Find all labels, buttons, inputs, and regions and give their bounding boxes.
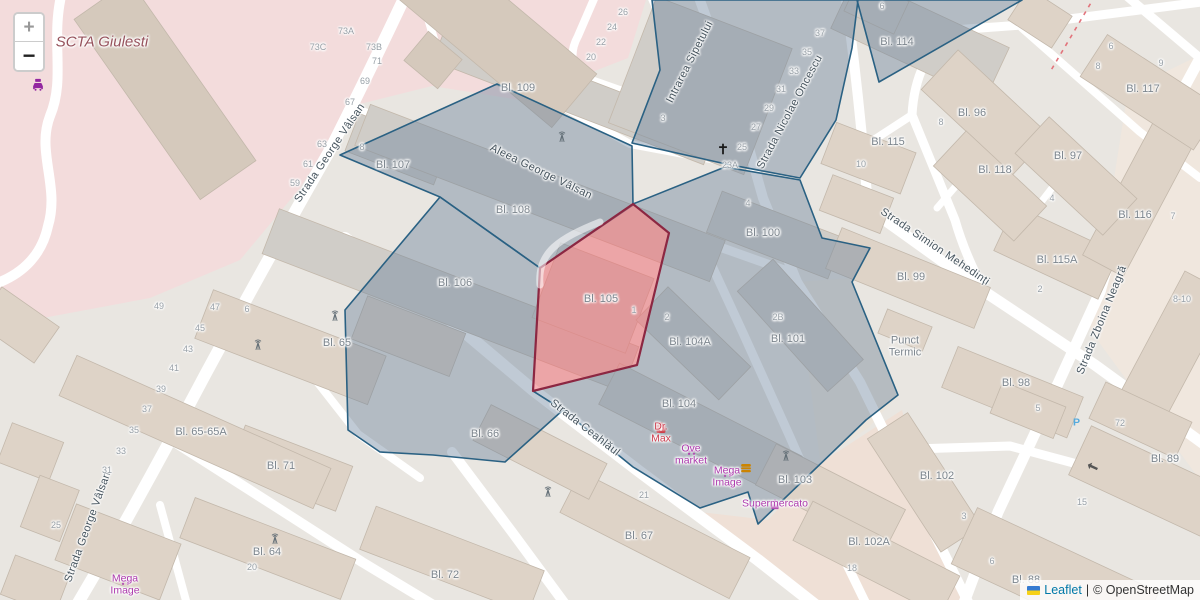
map-canvas[interactable]: SCTA GiulestiStrada George VâlsanAleea G… [0,0,1200,600]
zoom-out-button[interactable]: − [15,42,43,70]
zoom-in-button[interactable]: + [15,14,43,42]
osm-copyright[interactable]: © OpenStreetMap [1093,580,1194,600]
attribution-bar: Leaflet | © OpenStreetMap [1020,580,1200,600]
leaflet-link[interactable]: Leaflet [1044,580,1082,600]
ukraine-flag-icon [1027,586,1040,595]
zoom-control: + − [13,12,45,72]
attribution-separator: | [1086,580,1089,600]
base-map-svg [0,0,1200,600]
